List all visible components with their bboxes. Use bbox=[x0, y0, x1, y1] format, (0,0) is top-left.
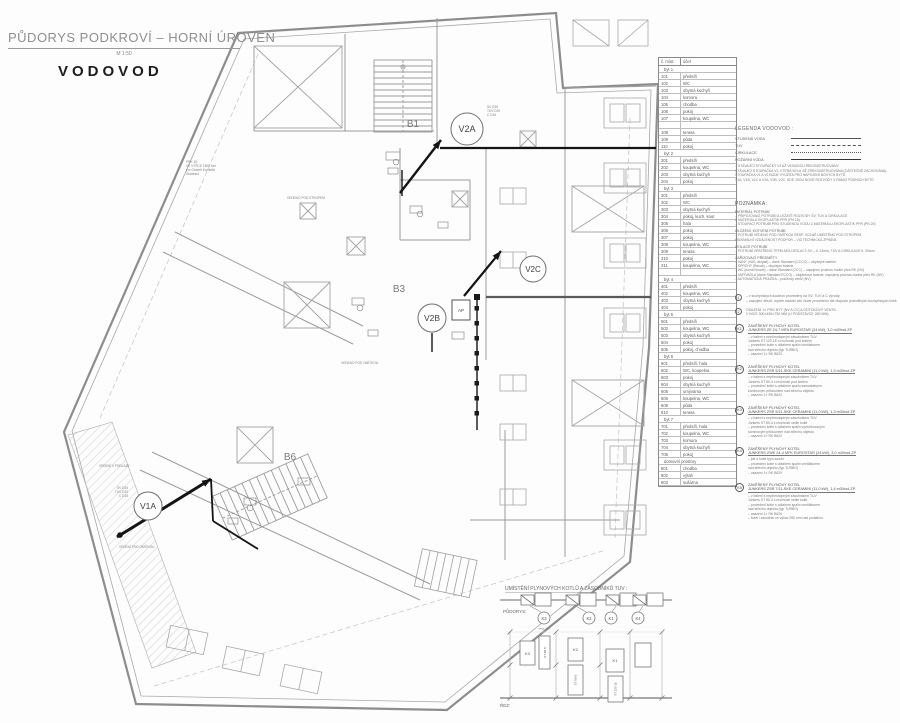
svg-text:K3: K3 bbox=[541, 616, 547, 621]
room-number: 605 bbox=[659, 388, 681, 394]
boiler-note-lines: – v balení s nepřímotopným zásobníkem TU… bbox=[748, 494, 855, 521]
notes-section-lines: – POTRUBÍ VEDENO POD OMÍTKOU RESP. VOLNĚ… bbox=[735, 233, 900, 242]
room-number: byt 4 bbox=[659, 276, 736, 282]
room-number bbox=[659, 269, 681, 275]
table-row: 504 pokoj bbox=[659, 339, 736, 346]
table-row: 103 obytná kuchyň bbox=[659, 87, 736, 94]
legend-vodovod: LEGENDA VODOVOD : STUDENÁ VODA TUV CIRKU… bbox=[735, 126, 898, 163]
legend-item: TUV bbox=[735, 142, 898, 149]
washer-label: AP bbox=[458, 308, 464, 313]
boiler-note-body: ZAVĚŠENÝ PLYNOVÝ KOTEL JUNKERS ZWE 24-4 … bbox=[748, 447, 856, 475]
room-number: 803 bbox=[659, 479, 681, 485]
header-room-purpose: účel bbox=[681, 59, 691, 64]
notes-section: MATERIÁL POTRUBÍ – PŘIPOJOVACÍ POTRUBÍ A… bbox=[735, 210, 900, 227]
boiler-leaders bbox=[530, 606, 643, 612]
svg-text:K2: K2 bbox=[586, 616, 592, 621]
room-number: 502 bbox=[659, 325, 681, 331]
table-row: 304 pokoj, kuch. kout bbox=[659, 213, 736, 220]
room-number: 306 bbox=[659, 227, 681, 233]
table-row: 105 chodba bbox=[659, 101, 736, 108]
table-row: 703 komora bbox=[659, 437, 736, 444]
notes-sections: MATERIÁL POTRUBÍ – PŘIPOJOVACÍ POTRUBÍ A… bbox=[735, 210, 900, 282]
table-row: 306 pokoj bbox=[659, 227, 736, 234]
notes-block: POZNÁMKA: MATERIÁL POTRUBÍ – PŘIPOJOVACÍ… bbox=[735, 201, 900, 284]
room-number: byt 2 bbox=[659, 150, 736, 156]
notes-title: POZNÁMKA: bbox=[735, 201, 900, 207]
room-purpose: pokoj bbox=[681, 235, 736, 240]
room-number: 603 bbox=[659, 374, 681, 380]
room-purpose: hala bbox=[681, 221, 736, 226]
riser-labels: V2A V2C V2B V1A bbox=[140, 124, 541, 511]
drawing-subtitle: VODOVOD bbox=[58, 63, 240, 80]
table-row: 202 koupelna, WC bbox=[659, 164, 736, 171]
room-purpose: pokoj bbox=[681, 144, 736, 149]
boiler-ref-circle: K4 bbox=[735, 447, 744, 456]
room-number: 203 bbox=[659, 171, 681, 177]
circled-note: 2 OSAZENÍ 1× PRO BYT (NV A CV) A ODTOKOV… bbox=[735, 308, 899, 317]
room-number: 404 bbox=[659, 304, 681, 310]
table-row: 307 pokoj bbox=[659, 234, 736, 241]
table-row bbox=[659, 269, 736, 276]
room-number: 702 bbox=[659, 430, 681, 436]
svg-text:K3: K3 bbox=[525, 651, 531, 656]
room-purpose: pokoj, kuch. kout bbox=[681, 214, 736, 219]
room-number: 105 bbox=[659, 101, 681, 107]
room-number: 604 bbox=[659, 381, 681, 387]
room-number: 310 bbox=[659, 255, 681, 261]
room-purpose: umývárna bbox=[681, 389, 736, 394]
table-row: domovní prostory bbox=[659, 458, 736, 465]
table-row: byt 7 bbox=[659, 416, 736, 423]
title-block: PŮDORYS PODKROVÍ – HORNÍ ÚROVEŇ M 1:50 V… bbox=[8, 30, 240, 80]
riser-label-v1a: V1A bbox=[140, 501, 156, 511]
boiler-schematic: UMÍSTĚNÍ PLYNOVÝCH KOTLŮ A ZÁSOBNÍKŮ TUV… bbox=[500, 584, 672, 708]
room-number: 503 bbox=[659, 332, 681, 338]
legend-line-sample bbox=[791, 159, 861, 160]
table-row: 505 pokoj, chodba bbox=[659, 346, 736, 353]
table-row: byt 5 bbox=[659, 311, 736, 318]
boiler-notes: K1 ZAVĚŠENÝ PLYNOVÝ KOTEL JUNKERS ZE 24-… bbox=[735, 324, 900, 529]
table-row: byt 3 bbox=[659, 185, 736, 192]
table-row: 609 půda bbox=[659, 402, 736, 409]
boiler-note-body: ZAVĚŠENÝ PLYNOVÝ KOTEL JUNKERS ZSR 5/11-… bbox=[748, 406, 855, 439]
boiler-note-lines: – v balení s nepřímotopným zásobníkem TU… bbox=[748, 416, 855, 438]
notes-section: IZOLACE POTRUBÍ – POTRUBÍ OPATŘENO TEPEL… bbox=[735, 245, 900, 253]
table-row: byt 4 bbox=[659, 276, 736, 283]
room-number: byt 6 bbox=[659, 353, 736, 359]
room-number: 701 bbox=[659, 423, 681, 429]
room-number: byt 7 bbox=[659, 416, 736, 422]
room-purpose: předsíň, hala bbox=[681, 424, 736, 429]
room-purpose: chodba bbox=[681, 466, 736, 471]
section-equipment-boxes bbox=[520, 636, 651, 702]
pipe-sizes-v1a: SV D25 TUV D20 C D16 bbox=[98, 486, 128, 498]
room-number: byt 5 bbox=[659, 311, 736, 317]
water-pipes bbox=[117, 140, 656, 549]
room-number: 504 bbox=[659, 339, 681, 345]
table-row: 803 sušárna bbox=[659, 479, 736, 486]
boiler-note-lines: – v balení s nepřímotopným zásobníkem TU… bbox=[748, 375, 855, 397]
riser-label-v2c: V2C bbox=[525, 265, 541, 274]
table-row: 801 chodba bbox=[659, 465, 736, 472]
room-number bbox=[659, 122, 681, 128]
legend-line-sample bbox=[791, 152, 861, 153]
room-number: 311 bbox=[659, 262, 681, 268]
room-purpose: WC, koupelna bbox=[681, 368, 736, 373]
room-purpose: WC bbox=[681, 200, 736, 205]
room-label-b3: B3 bbox=[393, 284, 406, 295]
boiler-ref-labels: K3 K2 K1 K4 bbox=[541, 616, 641, 621]
staircase-small bbox=[414, 549, 477, 598]
table-row: 311 koupelna, WC bbox=[659, 262, 736, 269]
room-purpose: koupelna, WC bbox=[681, 165, 736, 170]
room-purpose: pokoj bbox=[681, 109, 736, 114]
legend-item-label: CIRKULACE bbox=[735, 151, 787, 155]
room-purpose: předsíň bbox=[681, 319, 736, 324]
fixtures bbox=[228, 152, 464, 524]
notes-section: ULOŽENÍ, KOTVENÍ POTRUBÍ: – POTRUBÍ VEDE… bbox=[735, 229, 900, 242]
table-row: 102 WC bbox=[659, 80, 736, 87]
room-number: 106 bbox=[659, 108, 681, 114]
room-purpose: pokoj bbox=[681, 340, 736, 345]
annotation-pod-omitkou-2: VEDENÍ POD OMÍTKOU bbox=[119, 545, 154, 549]
room-number: 601 bbox=[659, 360, 681, 366]
room-number: 610 bbox=[659, 409, 681, 415]
room-number: 102 bbox=[659, 80, 681, 86]
legend-line-sample bbox=[791, 138, 861, 139]
room-purpose: koupelna, WC bbox=[681, 326, 736, 331]
boiler-ref-circle: K2 bbox=[735, 365, 744, 374]
room-number: 403 bbox=[659, 297, 681, 303]
boiler-ref-circle: K5 bbox=[735, 483, 744, 492]
room-number: 703 bbox=[659, 437, 681, 443]
table-row: 802 výtah bbox=[659, 472, 736, 479]
note-number-circle: 2 bbox=[735, 308, 742, 315]
svg-text:ST 120-1E: ST 120-1E bbox=[614, 682, 618, 695]
room-purpose: předsíň bbox=[681, 193, 736, 198]
notes-section: ZAŘIZOVACÍ PŘEDMĚTY – VANY (VAS, akrylát… bbox=[735, 256, 900, 282]
boiler-note-model: JUNKERS ZSR 5/11-SKE CERAMINI (11,0 kW),… bbox=[748, 410, 855, 416]
room-purpose: komora bbox=[681, 438, 736, 443]
room-number: 801 bbox=[659, 465, 681, 471]
room-number: 606 bbox=[659, 395, 681, 401]
room-purpose: pokoj bbox=[681, 228, 736, 233]
room-number: 305 bbox=[659, 220, 681, 226]
room-number: 302 bbox=[659, 199, 681, 205]
room-number: domovní prostory bbox=[659, 458, 736, 464]
table-row: 403 obytná kuchyň bbox=[659, 297, 736, 304]
boiler-note: K4 ZAVĚŠENÝ PLYNOVÝ KOTEL JUNKERS ZWE 24… bbox=[735, 447, 900, 475]
room-purpose: pokoj bbox=[681, 179, 736, 184]
notes-section-lines: – VANY (VAS, akrylát) – dané Standard (C… bbox=[735, 260, 900, 282]
drawing-scale: M 1:50 bbox=[8, 51, 240, 57]
room-purpose: obytná kuchyň bbox=[681, 445, 736, 450]
notes-section-lines: – POTRUBÍ OPATŘENO TEPELNOU IZOLACÍ: SV … bbox=[735, 249, 900, 253]
table-row bbox=[659, 122, 736, 129]
room-purpose: koupelna, WC bbox=[681, 291, 736, 296]
schematic-title: UMÍSTĚNÍ PLYNOVÝCH KOTLŮ A ZÁSOBNÍKŮ TUV… bbox=[505, 584, 627, 592]
legend-item-label: TUV bbox=[735, 144, 787, 148]
boiler-note-lines: – v balení s nepřímotopným zásobníkem TU… bbox=[748, 335, 852, 357]
room-purpose: pokoj bbox=[681, 375, 736, 380]
legend-title: LEGENDA VODOVOD : bbox=[735, 126, 898, 132]
boiler-note-model: JUNKERS ZWE 24-4 MFK EUROSTAR (24 kW), 3… bbox=[748, 451, 856, 457]
legend-item: POŽÁRNÍ VODA bbox=[735, 156, 898, 163]
table-row: 701 předsíň, hala bbox=[659, 423, 736, 430]
room-number: 309 bbox=[659, 248, 681, 254]
boiler-note: K1 ZAVĚŠENÝ PLYNOVÝ KOTEL JUNKERS ZE 24-… bbox=[735, 324, 900, 357]
svg-text:ST 80-5: ST 80-5 bbox=[543, 647, 547, 658]
room-purpose: koupelna, WC bbox=[681, 396, 736, 401]
riser-label-v2b: V2B bbox=[424, 313, 440, 323]
room-number: 505 bbox=[659, 346, 681, 352]
room-purpose: terasa bbox=[681, 249, 736, 254]
room-purpose: výtah bbox=[681, 473, 736, 478]
table-row: 201 předsíň bbox=[659, 157, 736, 164]
boiler-note-model: JUNKERS ZSR 7/11-SKE CERAMINI (11,0 kW),… bbox=[748, 487, 855, 493]
circled-note: 1 – v kuchyňských koutech provedeny na S… bbox=[735, 294, 899, 303]
table-row: 603 pokoj bbox=[659, 374, 736, 381]
table-row: 604 obytná kuchyň bbox=[659, 381, 736, 388]
room-label-b1: B1 bbox=[407, 119, 420, 130]
table-row: 305 hala bbox=[659, 220, 736, 227]
annotation-pod-stropem: VEDENO POD STROPEM bbox=[287, 196, 325, 200]
drawing-title: PŮDORYS PODKROVÍ – HORNÍ ÚROVEŇ bbox=[8, 30, 240, 49]
room-purpose: koupelna, WC bbox=[681, 431, 736, 436]
boiler-ref-circle: K1 bbox=[735, 324, 744, 333]
table-row: 310 pokoj bbox=[659, 255, 736, 262]
room-number: 501 bbox=[659, 318, 681, 324]
room-number: 202 bbox=[659, 164, 681, 170]
room-purpose: předsíň bbox=[681, 158, 736, 163]
table-row: 101 předsíň bbox=[659, 73, 736, 80]
schematic-section-label: ŘEZ: bbox=[500, 701, 510, 708]
table-row: 610 terasa bbox=[659, 409, 736, 416]
table-row: 303 obytná kuchyň bbox=[659, 206, 736, 213]
legend-item-label: STUDENÁ VODA bbox=[735, 137, 787, 141]
room-purpose: předsíň bbox=[681, 284, 736, 289]
table-row: 104 komora bbox=[659, 94, 736, 101]
table-row: 503 obytná kuchyň bbox=[659, 332, 736, 339]
room-number: 602 bbox=[659, 367, 681, 373]
room-purpose: obytná kuchyň bbox=[681, 88, 736, 93]
room-purpose: koupelna, WC bbox=[681, 242, 736, 247]
table-row: 404 pokoj bbox=[659, 304, 736, 311]
room-number: 101 bbox=[659, 73, 681, 79]
boiler-note: K3 ZAVĚŠENÝ PLYNOVÝ KOTEL JUNKERS ZSR 5/… bbox=[735, 406, 900, 439]
boiler-note-body: ZAVĚŠENÝ PLYNOVÝ KOTEL JUNKERS ZE 24-7 M… bbox=[748, 324, 852, 357]
boiler-note: K2 ZAVĚŠENÝ PLYNOVÝ KOTEL JUNKERS ZSR 5/… bbox=[735, 365, 900, 398]
room-number: 303 bbox=[659, 206, 681, 212]
room-number: 609 bbox=[659, 402, 681, 408]
boiler-plan-symbols bbox=[521, 593, 663, 606]
riser-note: – STÁVAJÍCÍ STOUPAČKY V2 AŽ V6 BUDOU REK… bbox=[735, 164, 899, 182]
room-number: 104 bbox=[659, 94, 681, 100]
room-purpose: půda bbox=[681, 403, 736, 408]
legend-item-label: POŽÁRNÍ VODA bbox=[735, 158, 787, 162]
room-purpose: obytná kuchyň bbox=[681, 172, 736, 177]
room-purpose: WC bbox=[681, 81, 736, 86]
room-schedule-body: byt 1 101 předsíň 102 WC 103 obytná kuch… bbox=[659, 66, 736, 486]
room-purpose: koupelna, WC bbox=[681, 116, 736, 121]
note-number-circle: 1 bbox=[735, 294, 742, 301]
annotation-prk: PRK 15 VE VÝŠCE 1500 mm pro Geberit Komb… bbox=[186, 160, 241, 177]
table-row: 502 koupelna, WC bbox=[659, 325, 736, 332]
table-row: 401 předsíň bbox=[659, 283, 736, 290]
svg-text:K2: K2 bbox=[573, 647, 579, 652]
legend-item: CIRKULACE bbox=[735, 149, 898, 156]
table-row: 601 předsíň, hala bbox=[659, 360, 736, 367]
table-row: 302 WC bbox=[659, 199, 736, 206]
riser-label-v2a: V2A bbox=[458, 124, 475, 134]
boiler-ref-circle: K3 bbox=[735, 406, 744, 415]
resp-label: resp. K5 bbox=[538, 627, 550, 631]
boiler-note-body: ZAVĚŠENÝ PLYNOVÝ KOTEL JUNKERS ZSR 5/11-… bbox=[748, 365, 855, 398]
room-number: 401 bbox=[659, 283, 681, 289]
room-purpose: předsíň, hala bbox=[681, 361, 736, 366]
room-purpose: terasa bbox=[681, 130, 736, 135]
svg-text:K4: K4 bbox=[635, 616, 641, 621]
table-row: 109 půda bbox=[659, 136, 736, 143]
note-text: – v kuchyňských koutech provedeny na SV,… bbox=[746, 294, 897, 303]
room-purpose: obytná kuchyň bbox=[681, 298, 736, 303]
legend-items: STUDENÁ VODA TUV CIRKULACE POŽÁRNÍ VODA bbox=[735, 135, 898, 163]
room-number: 402 bbox=[659, 290, 681, 296]
table-row: byt 1 bbox=[659, 66, 736, 73]
room-purpose: chodba bbox=[681, 102, 736, 107]
room-number: 307 bbox=[659, 234, 681, 240]
svg-text:K1: K1 bbox=[608, 616, 614, 621]
room-purpose: pokoj, chodba bbox=[681, 347, 736, 352]
room-number: 304 bbox=[659, 213, 681, 219]
room-schedule-table: č. míst. účel byt 1 101 předsíň 102 WC 1… bbox=[658, 57, 737, 487]
room-purpose: předsíň bbox=[681, 74, 736, 79]
room-purpose: obytná kuchyň bbox=[681, 382, 736, 387]
table-row: 402 koupelna, WC bbox=[659, 290, 736, 297]
table-row: 702 koupelna, WC bbox=[659, 430, 736, 437]
room-number: byt 1 bbox=[659, 66, 736, 72]
table-row: 605 umývárna bbox=[659, 388, 736, 395]
room-number: 108 bbox=[659, 129, 681, 135]
room-number: 301 bbox=[659, 192, 681, 198]
table-row: 301 předsíň bbox=[659, 192, 736, 199]
boiler-note: K5 ZAVĚŠENÝ PLYNOVÝ KOTEL JUNKERS ZSR 7/… bbox=[735, 483, 900, 520]
notes-section-lines: – PŘIPOJOVACÍ POTRUBÍ A LEŽATÉ ROZVODY S… bbox=[735, 214, 900, 227]
table-row: 501 předsíň bbox=[659, 318, 736, 325]
table-row: 108 terasa bbox=[659, 129, 736, 136]
table-row: 602 WC, koupelna bbox=[659, 367, 736, 374]
table-row: 107 koupelna, WC bbox=[659, 115, 736, 122]
table-row: byt 6 bbox=[659, 353, 736, 360]
room-purpose: obytná kuchyň bbox=[681, 207, 736, 212]
table-row: 309 terasa bbox=[659, 248, 736, 255]
room-number: 201 bbox=[659, 157, 681, 163]
boiler-note-lines: – jde o kotel typu kombi – provedení kot… bbox=[748, 457, 856, 475]
legend-item: STUDENÁ VODA bbox=[735, 135, 898, 142]
schematic-plan-label: PŮDORYS: bbox=[503, 608, 526, 614]
pipe-sizes-v2a: SV D25 TUV D20 C D16 bbox=[487, 105, 500, 117]
room-number: 109 bbox=[659, 136, 681, 142]
room-number: 110 bbox=[659, 143, 681, 149]
circled-notes: 1 – v kuchyňských koutech provedeny na S… bbox=[735, 294, 899, 321]
room-number: byt 3 bbox=[659, 185, 736, 191]
room-number: 308 bbox=[659, 241, 681, 247]
shafts-and-terraces bbox=[68, 46, 644, 668]
room-number: 204 bbox=[659, 178, 681, 184]
room-purpose: koupelna, WC bbox=[681, 263, 736, 268]
room-purpose: komora bbox=[681, 95, 736, 100]
table-row: 203 obytná kuchyň bbox=[659, 171, 736, 178]
table-row: 110 pokoj bbox=[659, 143, 736, 150]
legend-line-sample bbox=[791, 145, 861, 146]
room-purpose: pokoj bbox=[681, 452, 736, 457]
staircase-top bbox=[374, 60, 432, 132]
table-row: 308 koupelna, WC bbox=[659, 241, 736, 248]
room-number: 103 bbox=[659, 87, 681, 93]
boiler-note-model: JUNKERS ZE 24-7 MFA EUROSTAR (24 kW), 3,… bbox=[748, 328, 852, 334]
room-number: 107 bbox=[659, 115, 681, 121]
table-row: 704 obytná kuchyň bbox=[659, 444, 736, 451]
room-labels: B1 B3 B6 bbox=[284, 119, 420, 463]
room-purpose: pokoj bbox=[681, 305, 736, 310]
room-purpose: půda bbox=[681, 137, 736, 142]
annotation-pod-omitkou: VEDENO POD OMÍTKOU bbox=[341, 361, 378, 365]
boiler-note-body: ZAVĚŠENÝ PLYNOVÝ KOTEL JUNKERS ZSR 7/11-… bbox=[748, 483, 855, 520]
room-number: 704 bbox=[659, 444, 681, 450]
room-schedule-header: č. míst. účel bbox=[659, 58, 736, 66]
room-purpose: sušárna bbox=[681, 480, 736, 485]
room-number: 705 bbox=[659, 451, 681, 457]
table-row: 106 pokoj bbox=[659, 108, 736, 115]
room-purpose: obytná kuchyň bbox=[681, 333, 736, 338]
boiler-note-model: JUNKERS ZSR 5/11-SKE CERAMINI (11,0 kW),… bbox=[748, 369, 855, 375]
svg-text:K1: K1 bbox=[613, 658, 619, 663]
table-row: 606 koupelna, WC bbox=[659, 395, 736, 402]
table-row: 705 pokoj bbox=[659, 451, 736, 458]
svg-text:ST 80-5: ST 80-5 bbox=[574, 674, 578, 685]
room-label-b6: B6 bbox=[284, 452, 297, 463]
table-row: 204 pokoj bbox=[659, 178, 736, 185]
table-row: byt 2 bbox=[659, 150, 736, 157]
room-purpose: pokoj bbox=[681, 256, 736, 261]
note-text: OSAZENÍ 1× PRO BYT (NV A CV) A ODTOKOVÝ … bbox=[746, 308, 836, 317]
room-purpose: terasa bbox=[681, 410, 736, 415]
interior-walls bbox=[140, 18, 656, 600]
annotation-v-podlaze: VEDENÍ V PODLAZE bbox=[99, 464, 130, 468]
right-wing-windows bbox=[500, 20, 648, 535]
header-room-number: č. míst. bbox=[659, 58, 681, 65]
room-number: 802 bbox=[659, 472, 681, 478]
